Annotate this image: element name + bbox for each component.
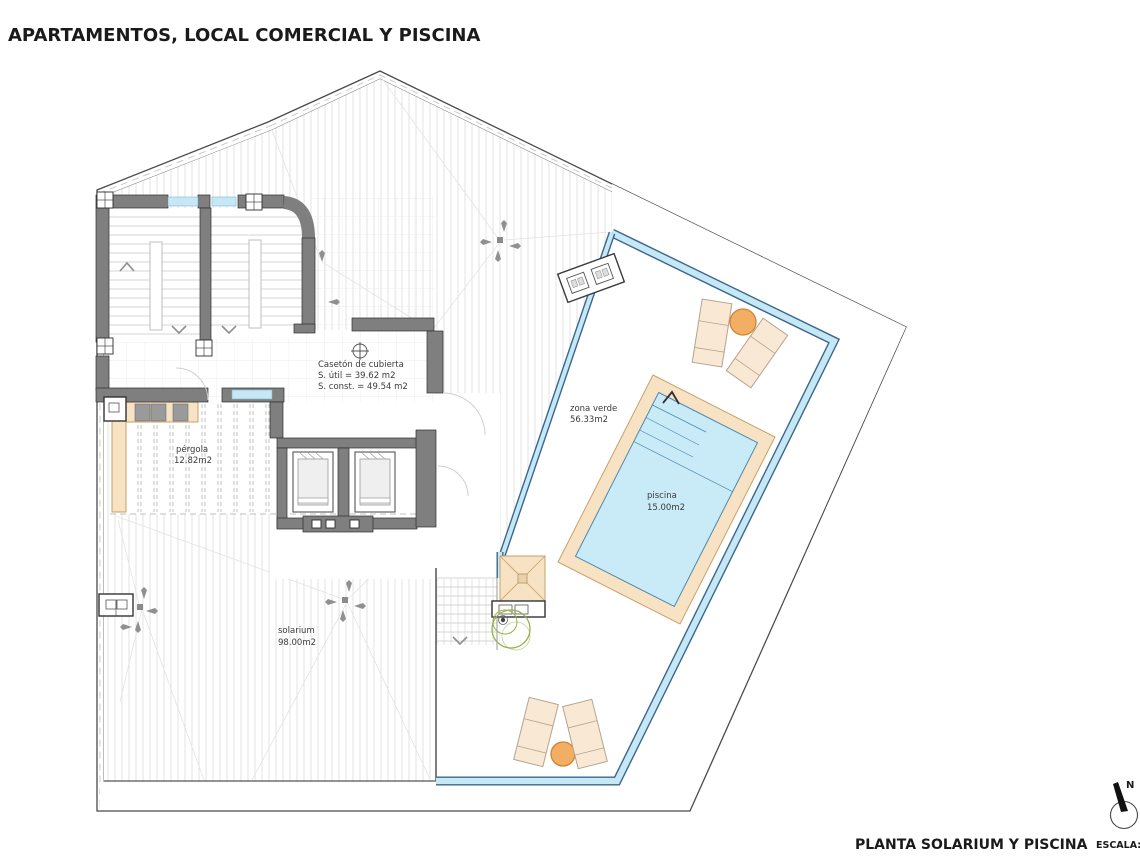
- bench-cushion: [135, 404, 150, 421]
- zona-verde-label: zona verde: [570, 404, 617, 414]
- piscina-area: 15.00m2: [647, 503, 685, 513]
- bench: [492, 601, 545, 617]
- upper-deck-grid: [312, 196, 434, 330]
- scupper-box: [99, 594, 133, 616]
- north-indicator: N: [1111, 780, 1138, 829]
- stair-handrail: [150, 242, 162, 330]
- plan-sheet: APARTAMENTOS, LOCAL COMERCIAL Y PISCINA: [0, 0, 1140, 860]
- zona-verde-area: 56.33m2: [570, 415, 608, 425]
- bench-cushion: [151, 404, 166, 421]
- round-table: [551, 742, 575, 766]
- caseton-label: Casetón de cubierta: [318, 359, 404, 370]
- caseton-sutil: S. útil = 39.62 m2: [318, 371, 396, 381]
- pergola-label: pérgola: [176, 444, 208, 455]
- round-table: [730, 309, 756, 335]
- pergola-area: 12.82m2: [174, 456, 212, 466]
- stair-handrail: [249, 240, 261, 328]
- floor-plan-drawing: APARTAMENTOS, LOCAL COMERCIAL Y PISCINA: [0, 0, 1140, 860]
- scupper-box: [104, 397, 126, 421]
- bench-cushion: [173, 404, 188, 421]
- solarium-area: 98.00m2: [278, 638, 316, 648]
- scale-label: ESCALA:: [1096, 840, 1140, 851]
- solarium-label: solarium: [278, 626, 315, 636]
- shower-tray: [500, 556, 545, 601]
- caseton-sconst: S. const. = 49.54 m2: [318, 382, 408, 392]
- piscina-label: piscina: [647, 491, 677, 501]
- north-label: N: [1126, 780, 1134, 791]
- plan-footer-title: PLANTA SOLARIUM Y PISCINA: [855, 837, 1088, 853]
- sheet-title: APARTAMENTOS, LOCAL COMERCIAL Y PISCINA: [8, 25, 480, 46]
